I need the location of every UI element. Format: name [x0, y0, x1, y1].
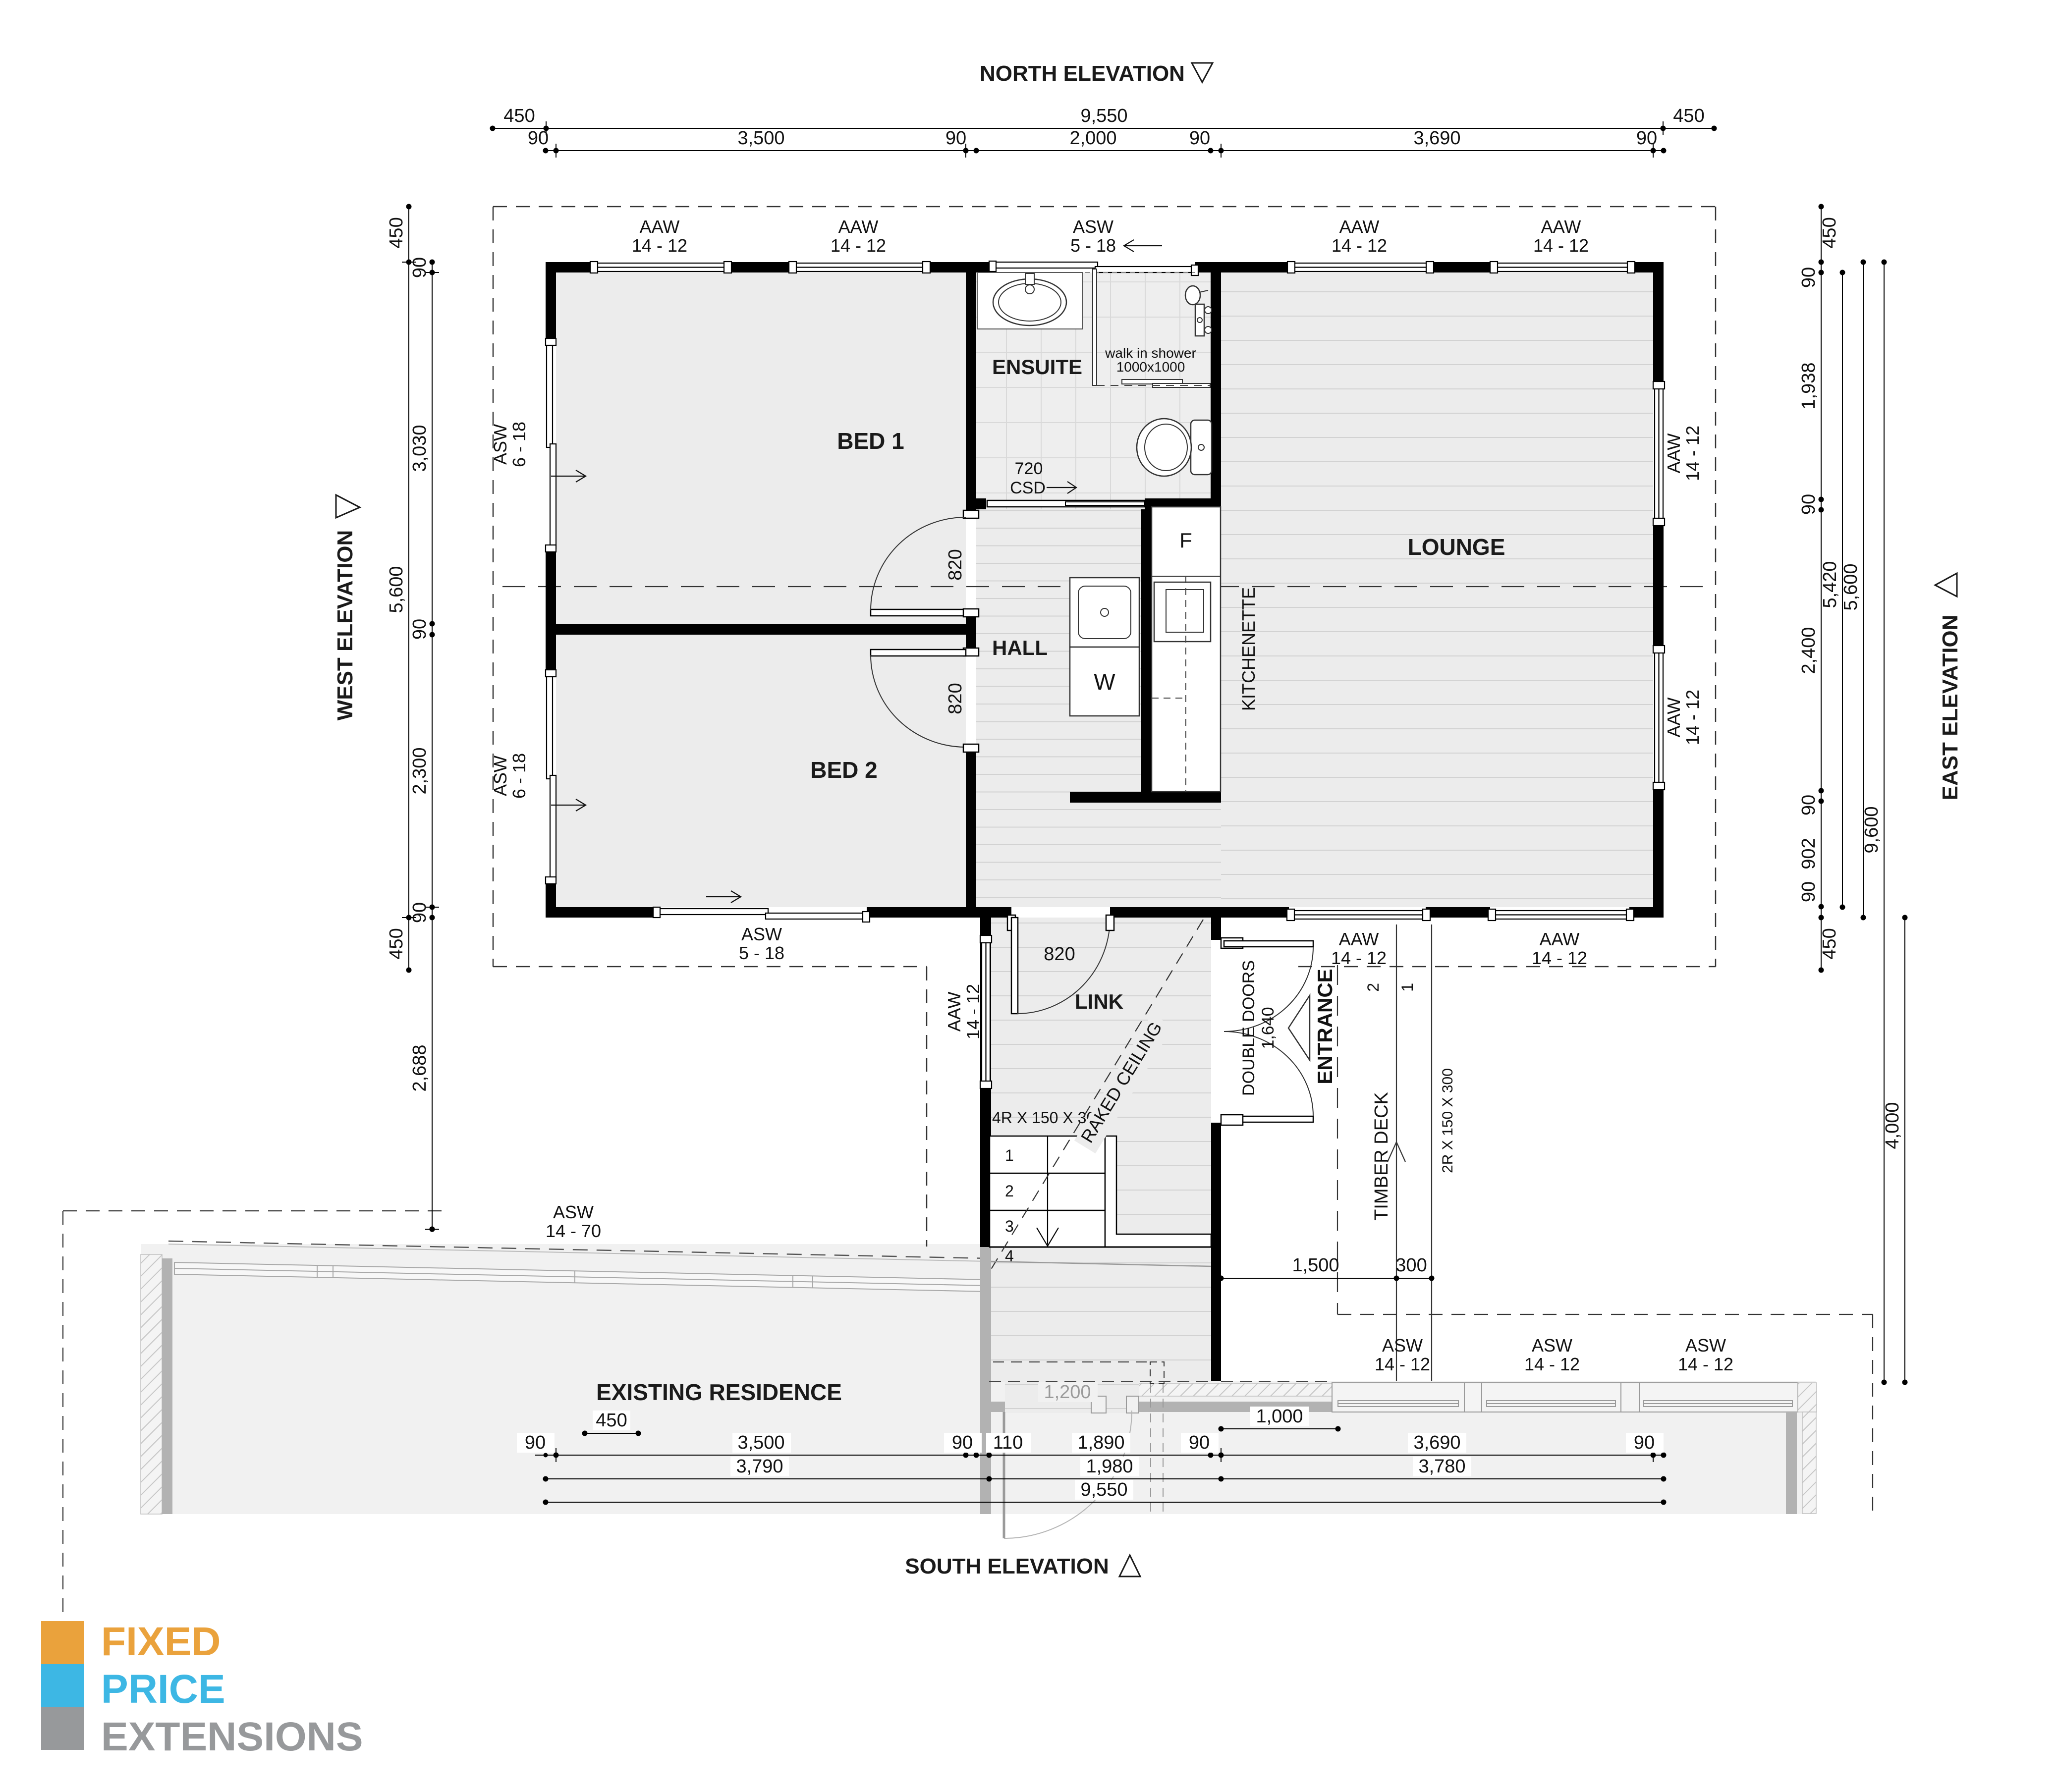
svg-text:1,938: 1,938	[1798, 362, 1819, 409]
svg-text:AAW: AAW	[1339, 929, 1379, 949]
svg-text:CSD: CSD	[1010, 479, 1046, 497]
svg-text:14 - 12: 14 - 12	[1533, 235, 1589, 256]
svg-text:820: 820	[1044, 944, 1075, 965]
svg-text:14 - 12: 14 - 12	[1532, 948, 1587, 968]
svg-text:820: 820	[945, 549, 966, 580]
svg-text:AAW: AAW	[1664, 434, 1684, 474]
svg-text:90: 90	[1798, 881, 1819, 902]
svg-text:2,000: 2,000	[1069, 128, 1116, 149]
svg-text:DOUBLE DOORS: DOUBLE DOORS	[1239, 960, 1258, 1096]
svg-text:W: W	[1094, 669, 1115, 695]
svg-text:300: 300	[1395, 1255, 1427, 1276]
svg-text:9,550: 9,550	[1080, 106, 1127, 126]
svg-text:90: 90	[528, 128, 549, 149]
svg-text:90: 90	[1189, 1432, 1210, 1453]
svg-text:1,890: 1,890	[1077, 1432, 1124, 1453]
svg-text:2,688: 2,688	[409, 1044, 430, 1091]
svg-text:2,400: 2,400	[1798, 627, 1819, 674]
svg-text:90: 90	[1634, 1432, 1655, 1453]
svg-text:BED 1: BED 1	[837, 428, 904, 454]
svg-text:6 - 18: 6 - 18	[509, 422, 529, 467]
svg-text:3,500: 3,500	[737, 128, 784, 149]
svg-text:3,790: 3,790	[736, 1456, 783, 1477]
svg-text:14 - 12: 14 - 12	[1332, 235, 1387, 256]
svg-text:90: 90	[1636, 128, 1657, 149]
svg-text:90: 90	[525, 1432, 546, 1453]
svg-text:ASW: ASW	[1685, 1335, 1726, 1356]
svg-text:ENTRANCE: ENTRANCE	[1313, 969, 1336, 1084]
svg-text:HALL: HALL	[992, 636, 1048, 659]
svg-text:F: F	[1179, 529, 1192, 552]
svg-text:3,690: 3,690	[1413, 128, 1460, 149]
svg-text:5,600: 5,600	[1840, 563, 1861, 610]
svg-text:9,600: 9,600	[1861, 806, 1882, 853]
svg-text:AAW: AAW	[838, 217, 879, 237]
svg-text:3,030: 3,030	[409, 425, 430, 472]
svg-text:AAW: AAW	[1540, 929, 1580, 949]
svg-text:1000x1000: 1000x1000	[1116, 359, 1185, 375]
svg-text:1: 1	[1005, 1146, 1014, 1164]
svg-text:1,980: 1,980	[1086, 1456, 1133, 1477]
svg-text:720: 720	[1015, 459, 1043, 478]
svg-text:14 - 12: 14 - 12	[963, 984, 983, 1039]
svg-text:AAW: AAW	[1541, 217, 1581, 237]
svg-text:90: 90	[946, 128, 966, 149]
svg-text:5 - 18: 5 - 18	[1070, 235, 1116, 256]
svg-text:90: 90	[409, 619, 430, 640]
svg-text:AAW: AAW	[944, 992, 964, 1032]
svg-text:FIXED: FIXED	[101, 1619, 221, 1664]
svg-text:5,600: 5,600	[386, 566, 407, 613]
svg-text:3,500: 3,500	[737, 1432, 784, 1453]
svg-text:450: 450	[1819, 217, 1840, 248]
svg-text:ASW: ASW	[490, 756, 510, 796]
svg-text:PRICE: PRICE	[101, 1667, 225, 1712]
svg-text:LINK: LINK	[1075, 990, 1123, 1013]
svg-text:ASW: ASW	[1382, 1335, 1423, 1356]
svg-text:14 - 12: 14 - 12	[1331, 948, 1387, 968]
svg-text:90: 90	[1798, 795, 1819, 815]
svg-text:450: 450	[1819, 928, 1840, 959]
svg-text:ASW: ASW	[490, 424, 510, 465]
svg-text:110: 110	[993, 1432, 1023, 1453]
svg-text:5,420: 5,420	[1820, 561, 1840, 608]
svg-text:4,000: 4,000	[1882, 1102, 1903, 1149]
svg-text:2: 2	[1364, 983, 1382, 992]
svg-text:2R X 150 X 300: 2R X 150 X 300	[1440, 1068, 1456, 1173]
svg-text:walk in shower: walk in shower	[1105, 345, 1196, 361]
svg-text:SOUTH ELEVATION: SOUTH ELEVATION	[905, 1554, 1109, 1578]
svg-text:ASW: ASW	[1532, 1335, 1572, 1356]
svg-text:14 - 12: 14 - 12	[632, 235, 687, 256]
svg-text:820: 820	[945, 683, 966, 714]
svg-text:450: 450	[386, 928, 407, 959]
svg-text:1,640: 1,640	[1259, 1007, 1278, 1049]
svg-text:ENSUITE: ENSUITE	[992, 355, 1082, 379]
svg-text:90: 90	[952, 1432, 973, 1453]
svg-text:2,300: 2,300	[409, 747, 430, 794]
svg-text:90: 90	[1798, 494, 1819, 515]
svg-text:1,000: 1,000	[1256, 1406, 1303, 1427]
svg-text:90: 90	[409, 902, 430, 923]
svg-text:ASW: ASW	[553, 1202, 594, 1222]
svg-text:14 - 12: 14 - 12	[1375, 1354, 1430, 1374]
svg-text:LOUNGE: LOUNGE	[1408, 534, 1505, 560]
svg-text:14 - 12: 14 - 12	[1524, 1354, 1580, 1374]
svg-text:90: 90	[1798, 267, 1819, 288]
svg-text:450: 450	[503, 106, 535, 126]
svg-text:90: 90	[409, 257, 430, 278]
svg-text:ASW: ASW	[1073, 217, 1113, 237]
svg-text:EXISTING RESIDENCE: EXISTING RESIDENCE	[596, 1379, 842, 1405]
svg-text:14 - 12: 14 - 12	[1682, 690, 1703, 745]
svg-text:AAW: AAW	[1664, 698, 1684, 738]
svg-text:1,500: 1,500	[1292, 1255, 1339, 1276]
svg-text:AAW: AAW	[640, 217, 680, 237]
svg-text:14 - 70: 14 - 70	[546, 1221, 601, 1241]
svg-text:EAST ELEVATION: EAST ELEVATION	[1938, 615, 1962, 801]
svg-text:14 - 12: 14 - 12	[1678, 1354, 1733, 1374]
svg-text:ASW: ASW	[741, 924, 782, 944]
svg-text:TIMBER DECK: TIMBER DECK	[1371, 1092, 1392, 1221]
svg-text:450: 450	[386, 217, 407, 248]
svg-text:2: 2	[1005, 1182, 1014, 1200]
svg-text:9,550: 9,550	[1080, 1479, 1127, 1500]
svg-text:14 - 12: 14 - 12	[831, 235, 886, 256]
svg-text:NORTH ELEVATION: NORTH ELEVATION	[980, 61, 1185, 86]
svg-text:6 - 18: 6 - 18	[509, 753, 529, 799]
svg-text:3,690: 3,690	[1413, 1432, 1460, 1453]
svg-text:KITCHENETTE: KITCHENETTE	[1238, 587, 1259, 711]
svg-text:1,200: 1,200	[1044, 1382, 1091, 1403]
svg-text:450: 450	[1673, 106, 1704, 126]
svg-text:BED 2: BED 2	[810, 757, 877, 783]
svg-text:WEST ELEVATION: WEST ELEVATION	[333, 530, 357, 721]
svg-text:450: 450	[596, 1410, 627, 1431]
svg-text:90: 90	[1189, 128, 1210, 149]
svg-text:EXTENSIONS: EXTENSIONS	[101, 1714, 363, 1759]
svg-text:902: 902	[1798, 838, 1819, 869]
svg-text:AAW: AAW	[1339, 217, 1380, 237]
svg-text:5 - 18: 5 - 18	[739, 943, 784, 963]
svg-text:1: 1	[1398, 983, 1416, 992]
svg-text:14 - 12: 14 - 12	[1682, 426, 1703, 481]
svg-text:3,780: 3,780	[1418, 1456, 1465, 1477]
svg-text:3: 3	[1005, 1217, 1014, 1235]
